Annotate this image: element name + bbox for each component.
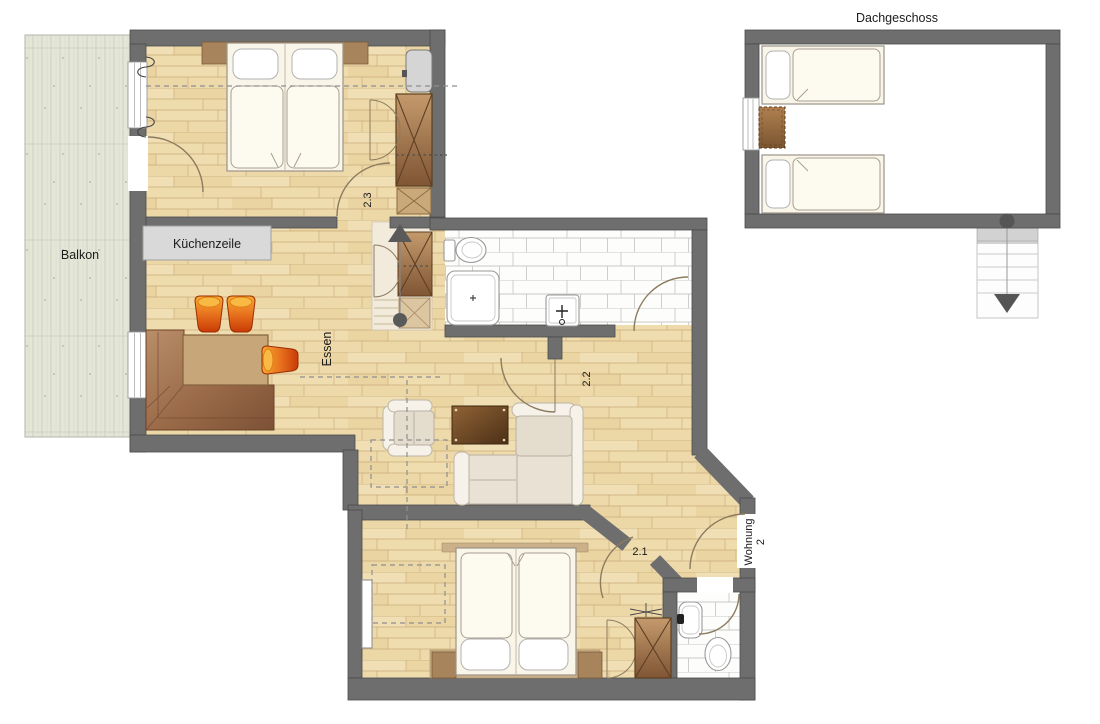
door-gap-balcony bbox=[128, 136, 148, 191]
attic-stairs bbox=[977, 222, 1038, 318]
stair-start-dot bbox=[393, 313, 407, 327]
double-bed-2-1 bbox=[456, 548, 576, 675]
stool bbox=[227, 296, 255, 332]
attic-title: Dachgeschoss bbox=[856, 11, 938, 25]
dining-table bbox=[183, 335, 268, 385]
radiator-valve bbox=[402, 70, 407, 77]
balcony-label: Balkon bbox=[61, 248, 99, 262]
room-2-1-label: 2.1 bbox=[632, 546, 647, 558]
sink-icon bbox=[546, 295, 579, 326]
wardrobe-2-3 bbox=[396, 94, 432, 186]
door-gap-bathroom-bottom bbox=[697, 577, 733, 593]
dining-label: Essen bbox=[320, 332, 334, 367]
room-2-2-label: 2.2 bbox=[581, 371, 593, 386]
apartment-label-line1: Wohnung bbox=[743, 519, 755, 566]
toilet-icon bbox=[705, 638, 731, 671]
attic bbox=[743, 30, 1060, 318]
stair-start-dot bbox=[1000, 214, 1015, 229]
balcony bbox=[25, 35, 130, 437]
balcony-deck bbox=[25, 35, 130, 437]
floorplan-canvas: Küchenzeile bbox=[0, 0, 1100, 724]
shower-icon bbox=[447, 271, 499, 325]
apartment-label-line2: 2 bbox=[755, 539, 767, 545]
nightstand bbox=[578, 652, 602, 678]
double-bed-2-3 bbox=[227, 43, 343, 171]
kitchenette-label: Küchenzeile bbox=[173, 237, 241, 251]
window-dining bbox=[128, 332, 147, 398]
window-attic bbox=[743, 98, 759, 150]
attic-bed-2 bbox=[762, 155, 884, 213]
cabinet-small-2-3 bbox=[397, 188, 431, 214]
stool bbox=[195, 296, 223, 332]
toilet-icon bbox=[444, 238, 486, 263]
coffee-table bbox=[452, 406, 508, 444]
stool bbox=[262, 346, 298, 374]
floorplan-svg: Küchenzeile bbox=[0, 0, 1100, 724]
room-2-3-label: 2.3 bbox=[362, 192, 374, 207]
nightstand bbox=[432, 652, 456, 678]
wardrobe-2-1 bbox=[635, 618, 671, 678]
kitchenette: Küchenzeile bbox=[143, 226, 271, 260]
attic-bed-1 bbox=[762, 46, 884, 104]
armchair bbox=[383, 400, 434, 456]
attic-dresser bbox=[759, 107, 785, 148]
sink-icon bbox=[677, 602, 702, 638]
radiator-panel bbox=[362, 580, 372, 648]
